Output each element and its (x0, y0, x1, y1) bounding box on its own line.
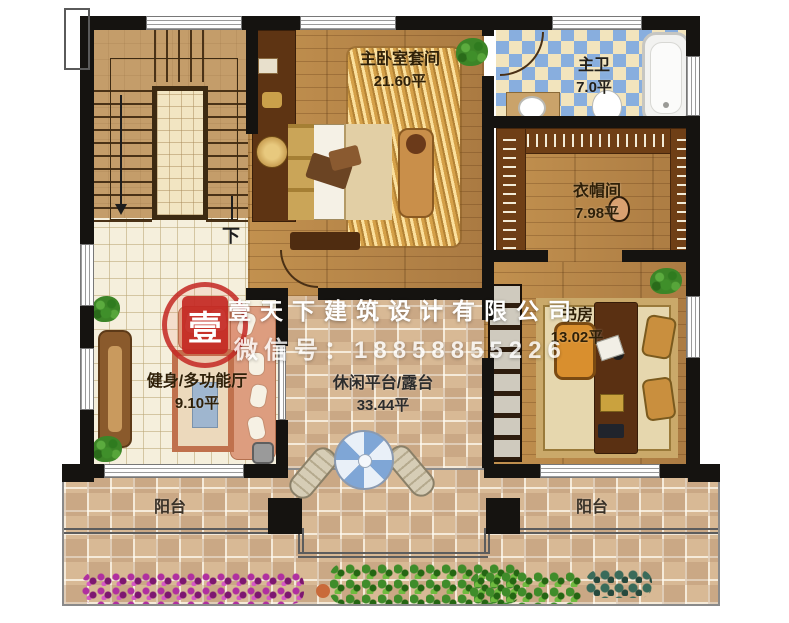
wall-stair-bedroom (246, 16, 258, 134)
window-left-upper (80, 244, 94, 306)
wall-bedroom-closet (482, 76, 494, 262)
wardrobe-top-hangers (500, 134, 696, 147)
flower-pot (316, 584, 330, 598)
closet-name: 衣帽间 (540, 180, 654, 203)
wall-bath-closet (494, 116, 700, 128)
gym-label: 健身/多功能厅 9.10平 (118, 370, 276, 415)
flower-bed-purple (82, 572, 304, 604)
study-plant (650, 268, 682, 294)
watermark-contact: 微信号：18858855226 (234, 330, 567, 365)
wall-bedroom-bath-upper (482, 16, 494, 36)
floor-plan-canvas: 阳台 阳台 下 健身/多功能厅 9.10平 主卧 (0, 0, 789, 623)
balcony-left-label: 阳台 (130, 496, 210, 519)
window-top-stair (146, 16, 242, 30)
stair-label-tick (231, 196, 233, 220)
watermark-seal-character: 壹 (182, 296, 228, 354)
gym-stool (252, 442, 274, 464)
wall-gym-terrace-lower (276, 420, 288, 478)
master-bath-area: 7.0平 (544, 77, 644, 99)
terrace-area: 33.44平 (298, 395, 468, 417)
window-right-lower (686, 296, 700, 358)
roof-trim-corner (64, 8, 90, 70)
terrace-bump-railing-bottom (298, 552, 488, 558)
pillar-left-of-terrace (268, 498, 302, 534)
balcony-railing-left (64, 528, 300, 534)
master-bedroom-area: 21.60平 (318, 71, 482, 93)
stair-down-label: 下 (222, 222, 240, 248)
pillar-right-of-terrace (486, 498, 520, 534)
desk-laptop (598, 424, 624, 438)
bed-blanket (344, 124, 392, 220)
flower-bed-green-right (470, 572, 582, 604)
balcony-right-label: 阳台 (552, 496, 632, 519)
desk-book (600, 394, 624, 412)
watermark-company: 壹天下建筑设计有限公司 (228, 292, 580, 326)
master-bath-label: 主卫 7.0平 (544, 54, 644, 99)
dresser-item-tray (262, 92, 282, 108)
flower-bed-teal-right (586, 570, 652, 598)
dresser-mirror (256, 136, 288, 168)
bedroom-bench-pillow (406, 134, 426, 154)
stair-direction-arrowhead (115, 204, 127, 215)
terrace-name: 休闲平台/露台 (298, 372, 468, 395)
gym-area: 9.10平 (118, 393, 276, 415)
window-top-bath (552, 16, 642, 30)
window-bottom-left (104, 464, 244, 478)
wall-study-left-lower (482, 358, 494, 468)
balcony-left-name: 阳台 (130, 496, 210, 519)
balcony-right-name: 阳台 (552, 496, 632, 519)
master-bath-name: 主卫 (544, 54, 644, 77)
wall-closet-study-left (494, 250, 548, 262)
dresser-item-box (258, 58, 278, 74)
window-bottom-right (540, 464, 660, 478)
closet-area: 7.98平 (540, 203, 654, 225)
terrace-label: 休闲平台/露台 33.44平 (298, 372, 468, 417)
closet-label: 衣帽间 7.98平 (540, 180, 654, 225)
study-cushion-2 (641, 376, 677, 422)
gym-plant-top-left (92, 296, 120, 322)
balcony-railing-right (488, 528, 718, 534)
bathtub-drain (663, 102, 669, 108)
stair-guide-line (110, 58, 238, 220)
stair-direction-line (120, 95, 122, 207)
window-right-upper (686, 56, 700, 116)
wardrobe-left-hangers (503, 132, 516, 258)
window-top-bedroom (300, 16, 396, 30)
wall-closet-study-right (622, 250, 700, 262)
gym-plant-bottom-left (92, 436, 122, 462)
master-bedroom-name: 主卧室套间 (318, 48, 482, 71)
tv-bench (290, 232, 360, 250)
window-left-lower (80, 348, 94, 410)
terrace-umbrella-hub (358, 454, 372, 468)
gym-name: 健身/多功能厅 (118, 370, 276, 393)
master-bedroom-label: 主卧室套间 21.60平 (318, 48, 482, 93)
